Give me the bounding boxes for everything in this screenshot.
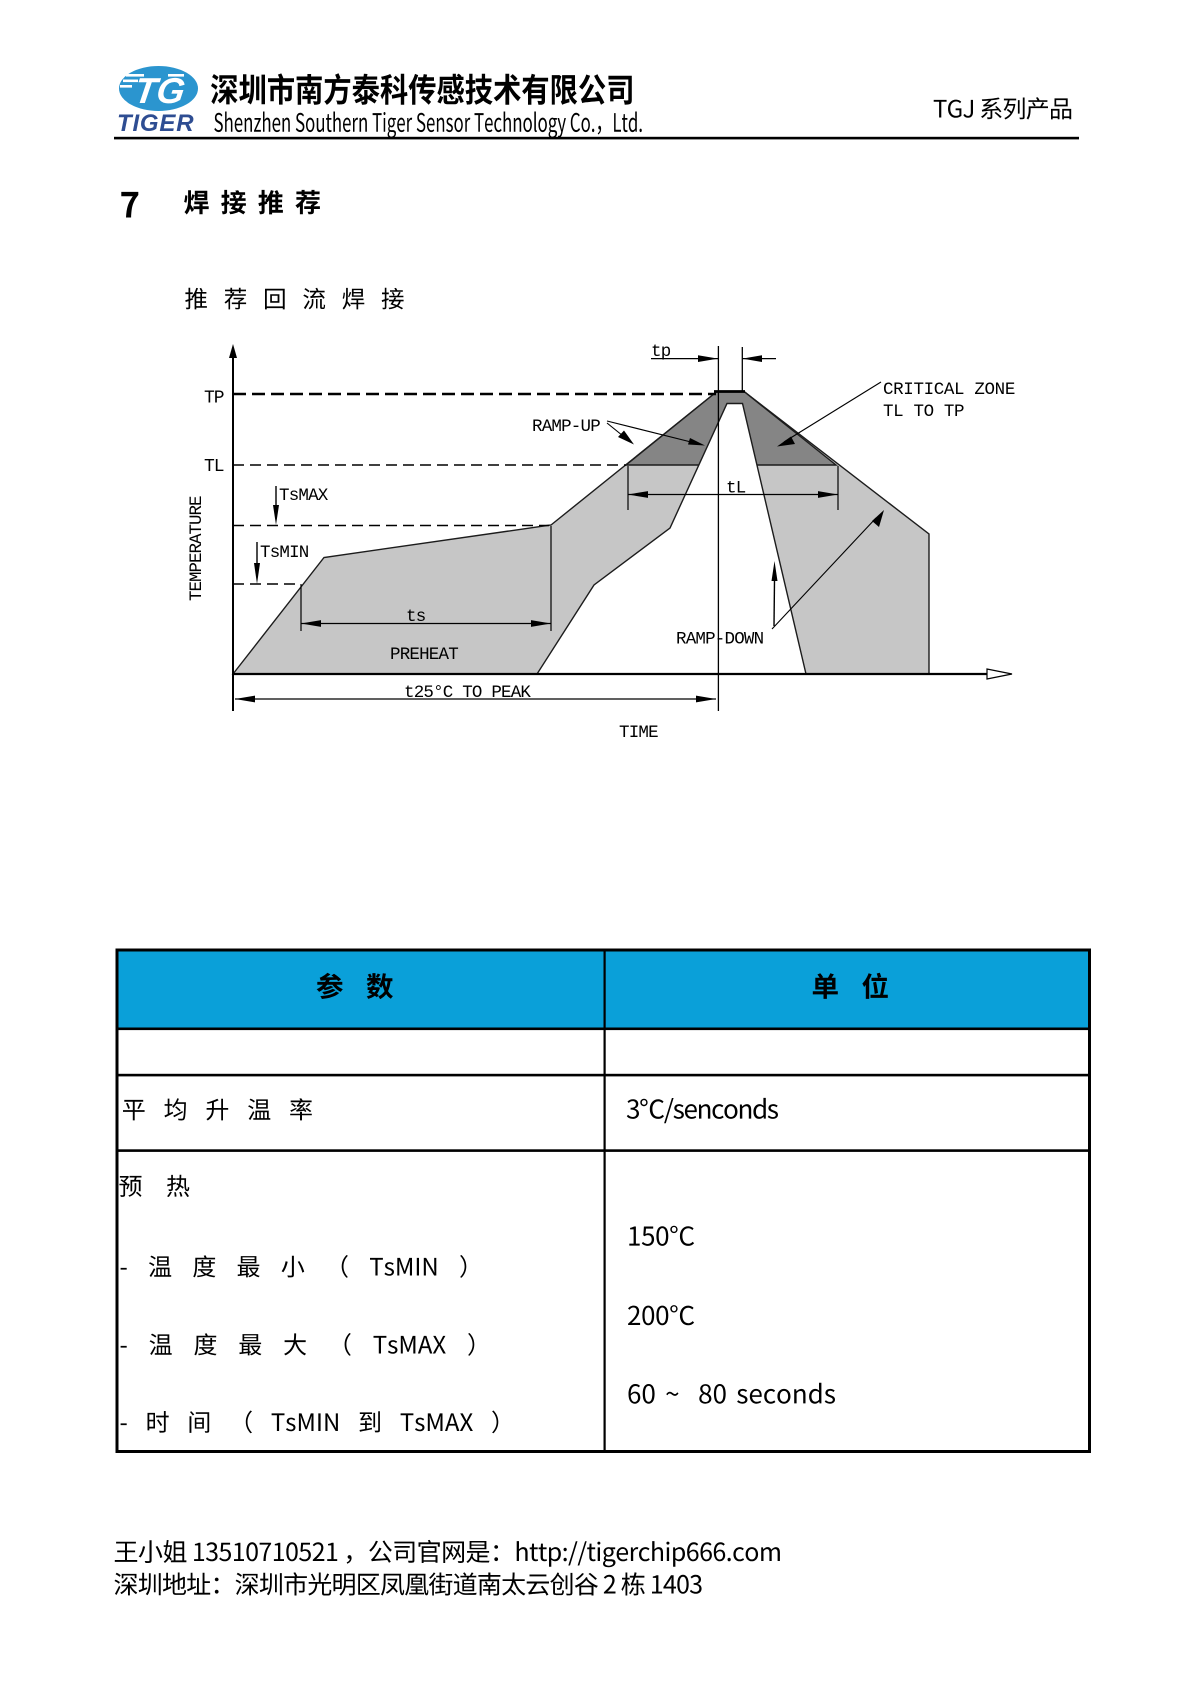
svg-text:tp: tp (651, 342, 671, 362)
svg-text:ts: ts (406, 607, 426, 627)
svg-text:CRITICAL ZONE: CRITICAL ZONE (883, 380, 1015, 400)
svg-text:TL: TL (204, 457, 224, 477)
svg-text:TP: TP (204, 389, 224, 409)
svg-text:TL TO TP: TL TO TP (883, 402, 964, 422)
svg-text:tL: tL (726, 479, 746, 499)
svg-text:t25°C TO PEAK: t25°C TO PEAK (404, 683, 531, 703)
svg-text:PREHEAT: PREHEAT (390, 645, 458, 665)
svg-text:TsMIN: TsMIN (260, 543, 309, 563)
svg-text:RAMP-DOWN: RAMP-DOWN (676, 630, 764, 650)
svg-text:TEMPERATURE: TEMPERATURE (187, 496, 207, 601)
svg-text:TIME: TIME (619, 723, 658, 743)
svg-text:RAMP-UP: RAMP-UP (532, 417, 600, 437)
svg-text:TIGER: TIGER (117, 110, 194, 137)
svg-text:TsMAX: TsMAX (279, 486, 329, 506)
